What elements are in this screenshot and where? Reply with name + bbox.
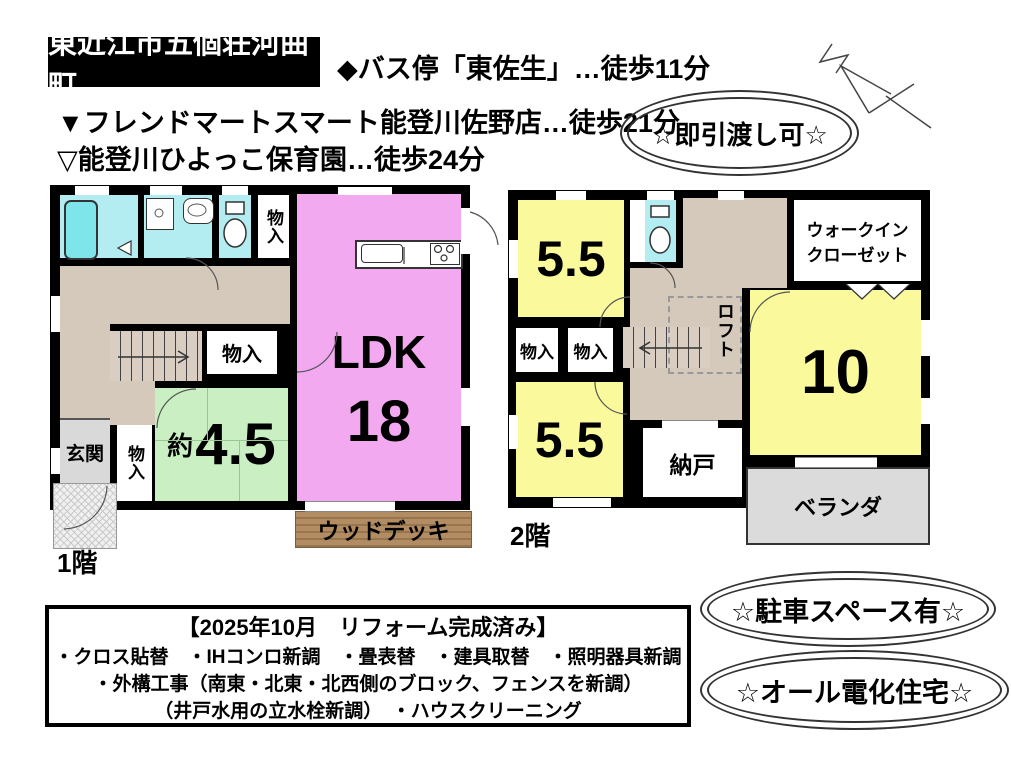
folding-door-marker <box>878 284 910 299</box>
folding-door-marker <box>846 284 878 299</box>
renovation-title: 【2025年10月 リフォーム完成済み】 <box>178 610 559 642</box>
door-arc <box>600 297 630 327</box>
renovation-line1: ・クロス貼替 ・IHコンロ新調 ・畳表替 ・建具取替 ・照明器具新調 <box>54 642 681 669</box>
badge-all-electric-text: ☆オール電化住宅☆ <box>736 671 973 710</box>
renovation-info-box: 【2025年10月 リフォーム完成済み】 ・クロス貼替 ・IHコンロ新調 ・畳表… <box>45 605 691 727</box>
badge-parking-inner: ☆駐車スペース有☆ <box>707 578 989 640</box>
toilet-icon <box>650 227 670 253</box>
door-arc <box>650 263 675 288</box>
badge-parking-text: ☆駐車スペース有☆ <box>731 590 965 629</box>
door-arc <box>750 292 790 332</box>
badge-all-electric-inner: ☆オール電化住宅☆ <box>707 657 1002 723</box>
renovation-line2: ・外構工事（南東・北東・北西側のブロック、フェンスを新調） <box>94 669 643 696</box>
badge-parking: ☆駐車スペース有☆ <box>700 571 996 647</box>
renovation-line3: （井戸水用の立水栓新調） ・ハウスクリーニング <box>154 696 582 723</box>
toilet-tank-icon <box>651 206 669 217</box>
door-arc <box>595 382 627 414</box>
badge-all-electric: ☆オール電化住宅☆ <box>700 650 1009 730</box>
floorplan-flyer: 東近江市五個荘河曲町 ◆バス停「東佐生」…徒歩11分 ▼フレンドマートスマート能… <box>0 0 1011 768</box>
